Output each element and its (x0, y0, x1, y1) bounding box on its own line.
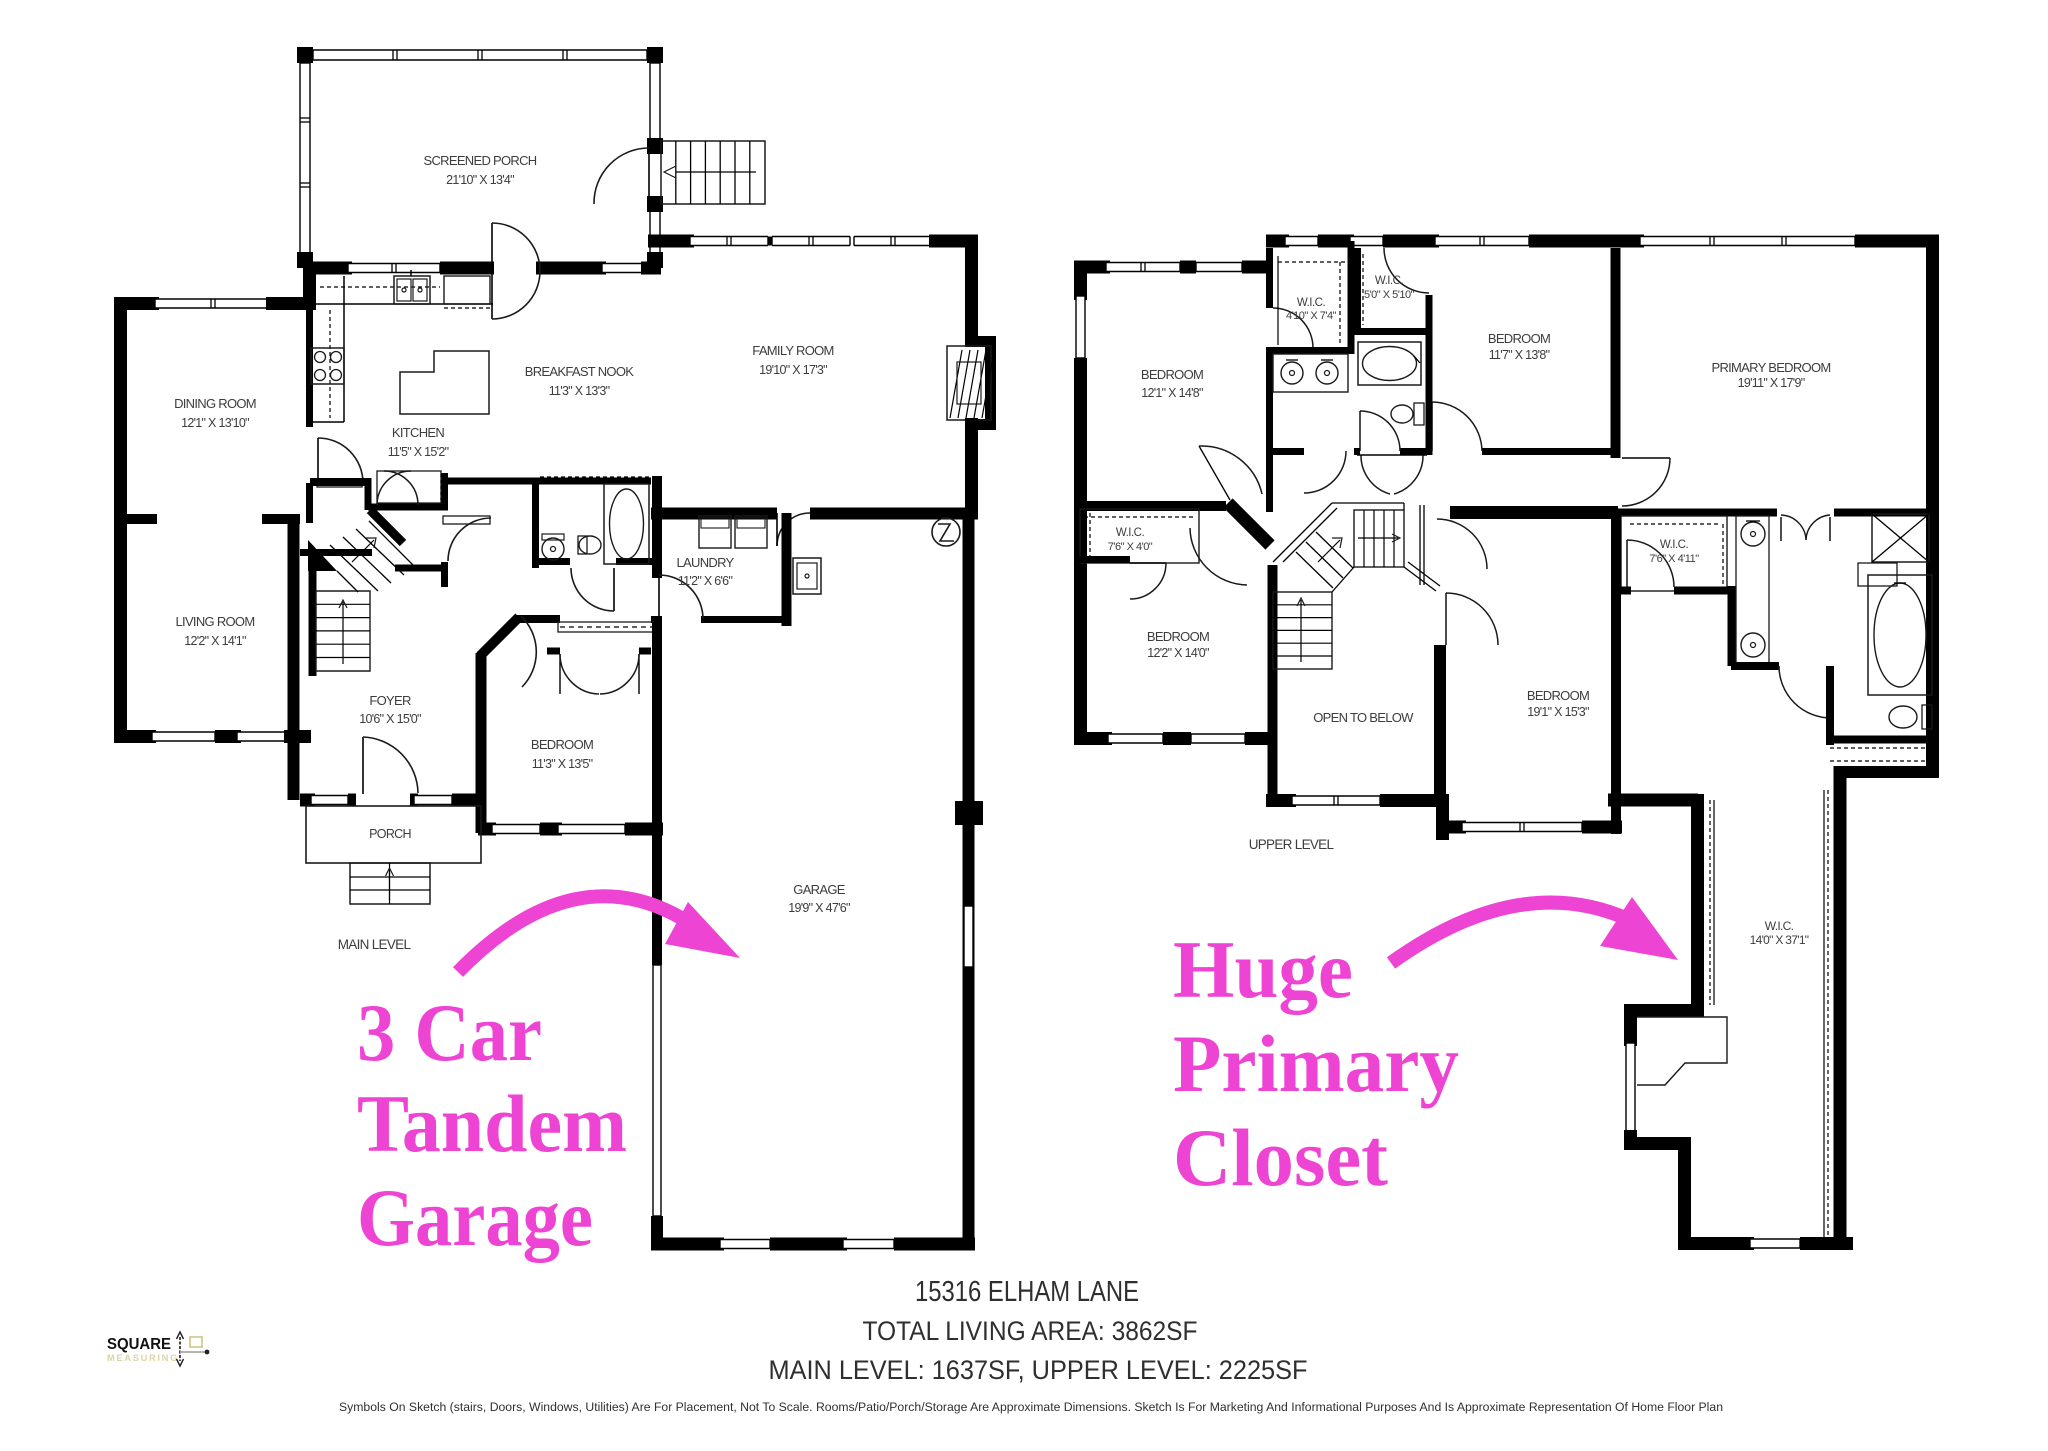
svg-text:12'2" X 14'0": 12'2" X 14'0" (1147, 646, 1209, 660)
svg-text:BEDROOM: BEDROOM (1488, 331, 1550, 346)
svg-text:KITCHEN: KITCHEN (392, 425, 444, 440)
svg-text:W.I.C.: W.I.C. (1116, 527, 1145, 539)
svg-text:FOYER: FOYER (369, 693, 411, 708)
svg-text:3 Car: 3 Car (357, 987, 542, 1078)
svg-text:W.I.C.: W.I.C. (1765, 919, 1794, 933)
svg-text:Closet: Closet (1173, 1112, 1388, 1203)
svg-text:FAMILY ROOM: FAMILY ROOM (752, 343, 833, 358)
svg-text:BEDROOM: BEDROOM (1147, 629, 1209, 644)
svg-text:PRIMARY BEDROOM: PRIMARY BEDROOM (1711, 360, 1830, 375)
svg-text:19'1" X 15'3": 19'1" X 15'3" (1527, 705, 1589, 719)
svg-text:Symbols On Sketch (stairs, Doo: Symbols On Sketch (stairs, Doors, Window… (339, 1400, 1723, 1414)
svg-text:BEDROOM: BEDROOM (1141, 367, 1203, 382)
svg-text:SQUARE: SQUARE (107, 1336, 171, 1353)
svg-text:7'6" X 4'11": 7'6" X 4'11" (1649, 553, 1699, 565)
svg-text:BEDROOM: BEDROOM (1527, 688, 1589, 703)
svg-text:21'10" X 13'4": 21'10" X 13'4" (446, 173, 514, 187)
svg-text:BEDROOM: BEDROOM (531, 737, 593, 752)
svg-text:LIVING ROOM: LIVING ROOM (176, 614, 255, 629)
svg-text:Primary: Primary (1173, 1018, 1459, 1109)
svg-text:19'10" X 17'3": 19'10" X 17'3" (759, 363, 827, 377)
svg-text:11'3" X 13'3": 11'3" X 13'3" (549, 384, 610, 398)
svg-text:11'2" X 6'6": 11'2" X 6'6" (678, 574, 733, 588)
svg-text:11'3" X 13'5": 11'3" X 13'5" (532, 757, 593, 771)
svg-text:7'6" X 4'0": 7'6" X 4'0" (1108, 541, 1153, 553)
svg-text:4'10" X 7'4": 4'10" X 7'4" (1286, 310, 1337, 322)
svg-text:10'6" X 15'0": 10'6" X 15'0" (359, 712, 421, 726)
svg-text:Huge: Huge (1173, 924, 1353, 1015)
svg-text:11'7" X 13'8": 11'7" X 13'8" (1489, 348, 1550, 362)
svg-text:DINING ROOM: DINING ROOM (174, 396, 256, 411)
svg-text:W.I.C.: W.I.C. (1375, 275, 1404, 287)
svg-text:MAIN LEVEL: 1637SF, UPPER LEVE: MAIN LEVEL: 1637SF, UPPER LEVEL: 2225SF (769, 1355, 1308, 1385)
svg-text:W.I.C.: W.I.C. (1660, 539, 1689, 551)
svg-text:12'1" X 14'8": 12'1" X 14'8" (1141, 386, 1203, 400)
svg-text:12'1" X 13'10": 12'1" X 13'10" (181, 416, 249, 430)
svg-text:14'0" X 37'1": 14'0" X 37'1" (1750, 933, 1809, 947)
svg-text:W.I.C.: W.I.C. (1297, 297, 1326, 309)
svg-text:BREAKFAST NOOK: BREAKFAST NOOK (525, 364, 634, 379)
svg-text:19'9" X 47'6": 19'9" X 47'6" (788, 901, 850, 915)
svg-text:MEASURING: MEASURING (107, 1353, 179, 1363)
svg-text:5'0" X 5'10": 5'0" X 5'10" (1364, 289, 1415, 301)
svg-text:15316 ELHAM LANE: 15316 ELHAM LANE (915, 1276, 1139, 1308)
svg-text:LAUNDRY: LAUNDRY (677, 555, 735, 570)
svg-text:Garage: Garage (357, 1172, 593, 1263)
svg-text:SCREENED PORCH: SCREENED PORCH (424, 153, 537, 168)
svg-text:OPEN TO BELOW: OPEN TO BELOW (1313, 710, 1414, 725)
svg-text:MAIN LEVEL: MAIN LEVEL (338, 937, 412, 952)
svg-text:TOTAL LIVING AREA: 3862SF: TOTAL LIVING AREA: 3862SF (863, 1316, 1198, 1346)
svg-text:11'5" X 15'2": 11'5" X 15'2" (388, 445, 449, 459)
svg-text:GARAGE: GARAGE (793, 882, 845, 897)
svg-text:19'11" X 17'9": 19'11" X 17'9" (1738, 376, 1805, 390)
svg-text:Tandem: Tandem (357, 1078, 627, 1169)
svg-text:12'2" X 14'1": 12'2" X 14'1" (184, 634, 246, 648)
svg-text:UPPER LEVEL: UPPER LEVEL (1249, 837, 1335, 852)
svg-text:PORCH: PORCH (369, 827, 411, 841)
